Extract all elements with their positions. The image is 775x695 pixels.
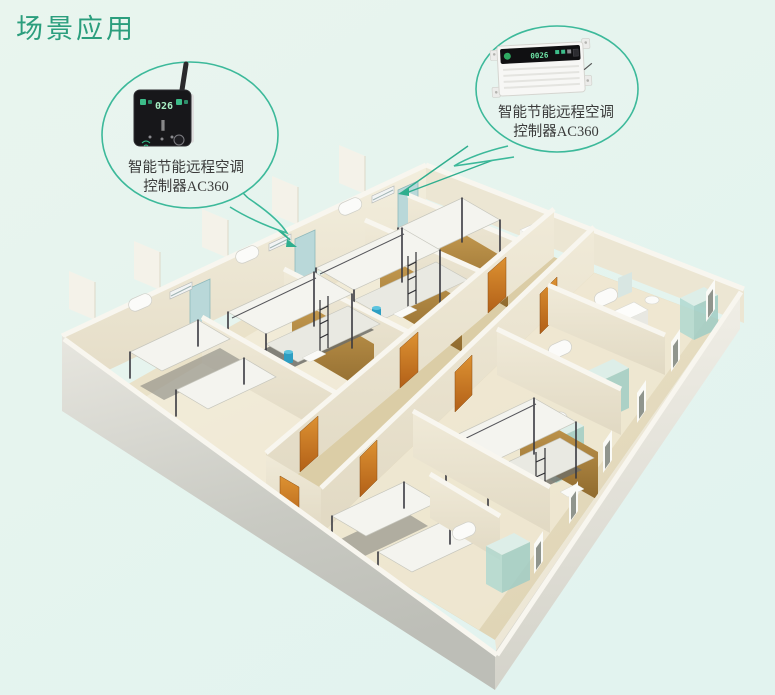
scene-application-diagram: 026 ‖ 智能节能远程空调 控制器AC360 0026 bbox=[0, 0, 775, 695]
thermostat-display: 026 bbox=[155, 101, 173, 112]
diagram-canvas: 026 ‖ 智能节能远程空调 控制器AC360 0026 bbox=[0, 0, 775, 695]
callout-left-label-line2: 控制器AC360 bbox=[143, 178, 228, 195]
power-button bbox=[174, 135, 184, 145]
pause-icon: ‖ bbox=[160, 118, 166, 131]
callout-right-label-line2: 控制器AC360 bbox=[513, 123, 598, 140]
controller-device: 0026 bbox=[490, 38, 594, 97]
toilet bbox=[645, 296, 659, 304]
callout-left-label-line1: 智能节能远程空调 bbox=[128, 159, 244, 176]
controller-display: 0026 bbox=[530, 51, 549, 61]
callout-right-label-line1: 智能节能远程空调 bbox=[498, 104, 614, 121]
page-title: 场景应用 bbox=[16, 14, 136, 44]
